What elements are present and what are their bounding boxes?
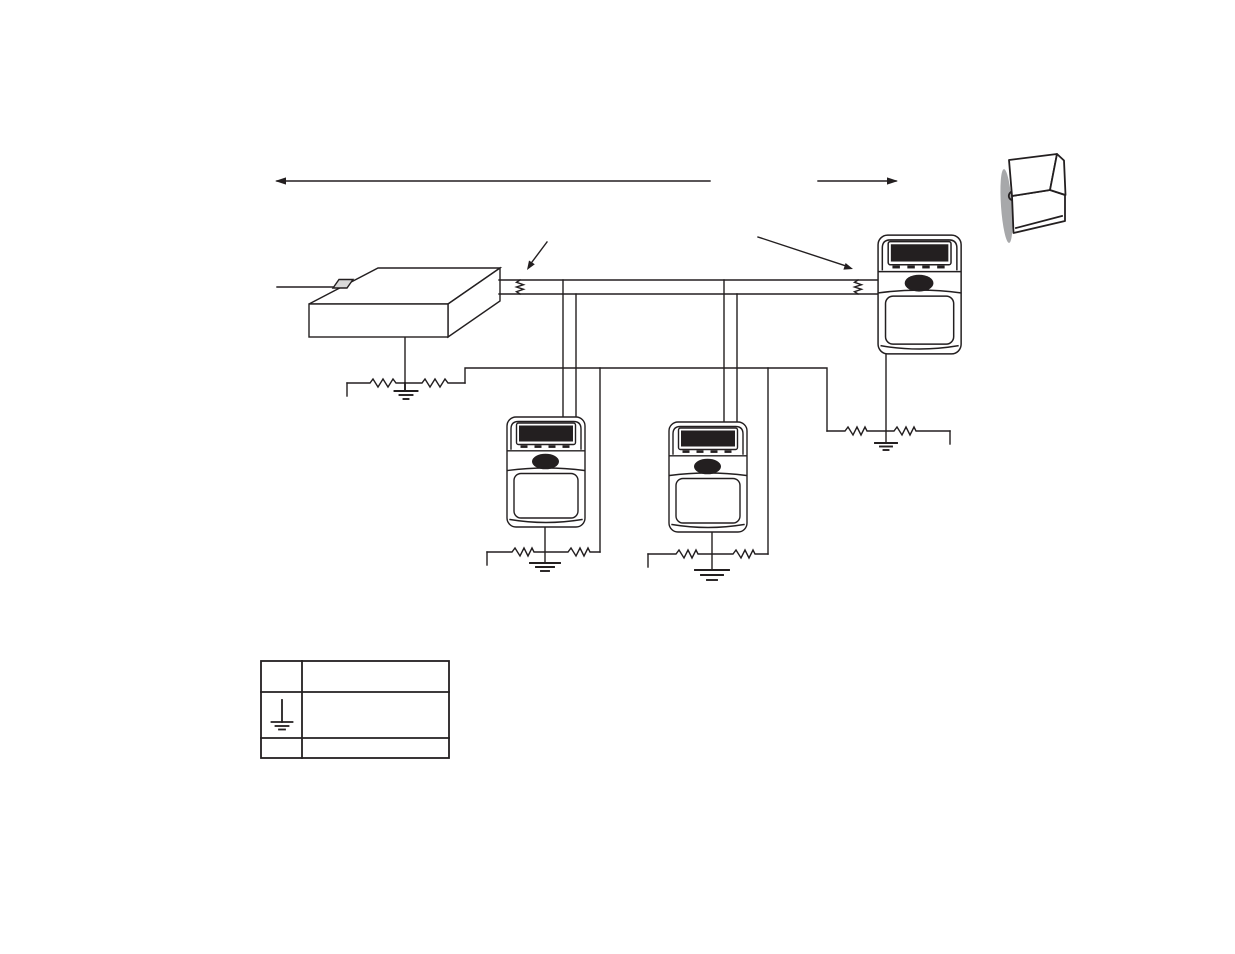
controller-front-face [309, 304, 448, 337]
legend-table [261, 661, 449, 758]
legend-table-border [261, 661, 449, 758]
ground-line-with-resistors [827, 427, 950, 435]
ground-line-with-resistors [487, 548, 600, 556]
arrowhead-right-icon [887, 177, 898, 184]
wiring-diagram-canvas [0, 0, 1235, 954]
earth-ground-icon [395, 383, 418, 399]
bus-wires [499, 237, 878, 294]
terminal-3-ground-network [827, 355, 950, 450]
termination-resistor-left [517, 280, 524, 294]
earth-ground-icon [695, 570, 729, 580]
termination-resistor-right [855, 280, 862, 294]
terminal-1-ground-network [487, 527, 600, 571]
ground-line-with-resistors [648, 550, 768, 558]
callout-line [758, 237, 846, 266]
controller-ground-network [347, 379, 465, 399]
callout-arrow-left-termination [527, 242, 547, 270]
bus-drop-wires [563, 280, 737, 425]
earth-ground-icon [530, 563, 560, 571]
terminal-2-ground-network [648, 530, 768, 580]
diagram-root [261, 154, 1066, 758]
arrowhead-icon [843, 263, 853, 270]
page-turn-icon [998, 154, 1065, 243]
earth-ground-icon [875, 443, 897, 450]
arrowhead-left-icon [275, 177, 286, 184]
ground-line-with-resistors [347, 379, 465, 387]
arrowhead-icon [527, 261, 535, 271]
callout-arrow-right-termination [758, 237, 853, 270]
terminal-1 [507, 417, 585, 527]
terminal-2 [669, 422, 747, 532]
host-controller [277, 268, 500, 383]
terminal-3 [878, 235, 961, 354]
dimension-arrows [275, 177, 898, 184]
